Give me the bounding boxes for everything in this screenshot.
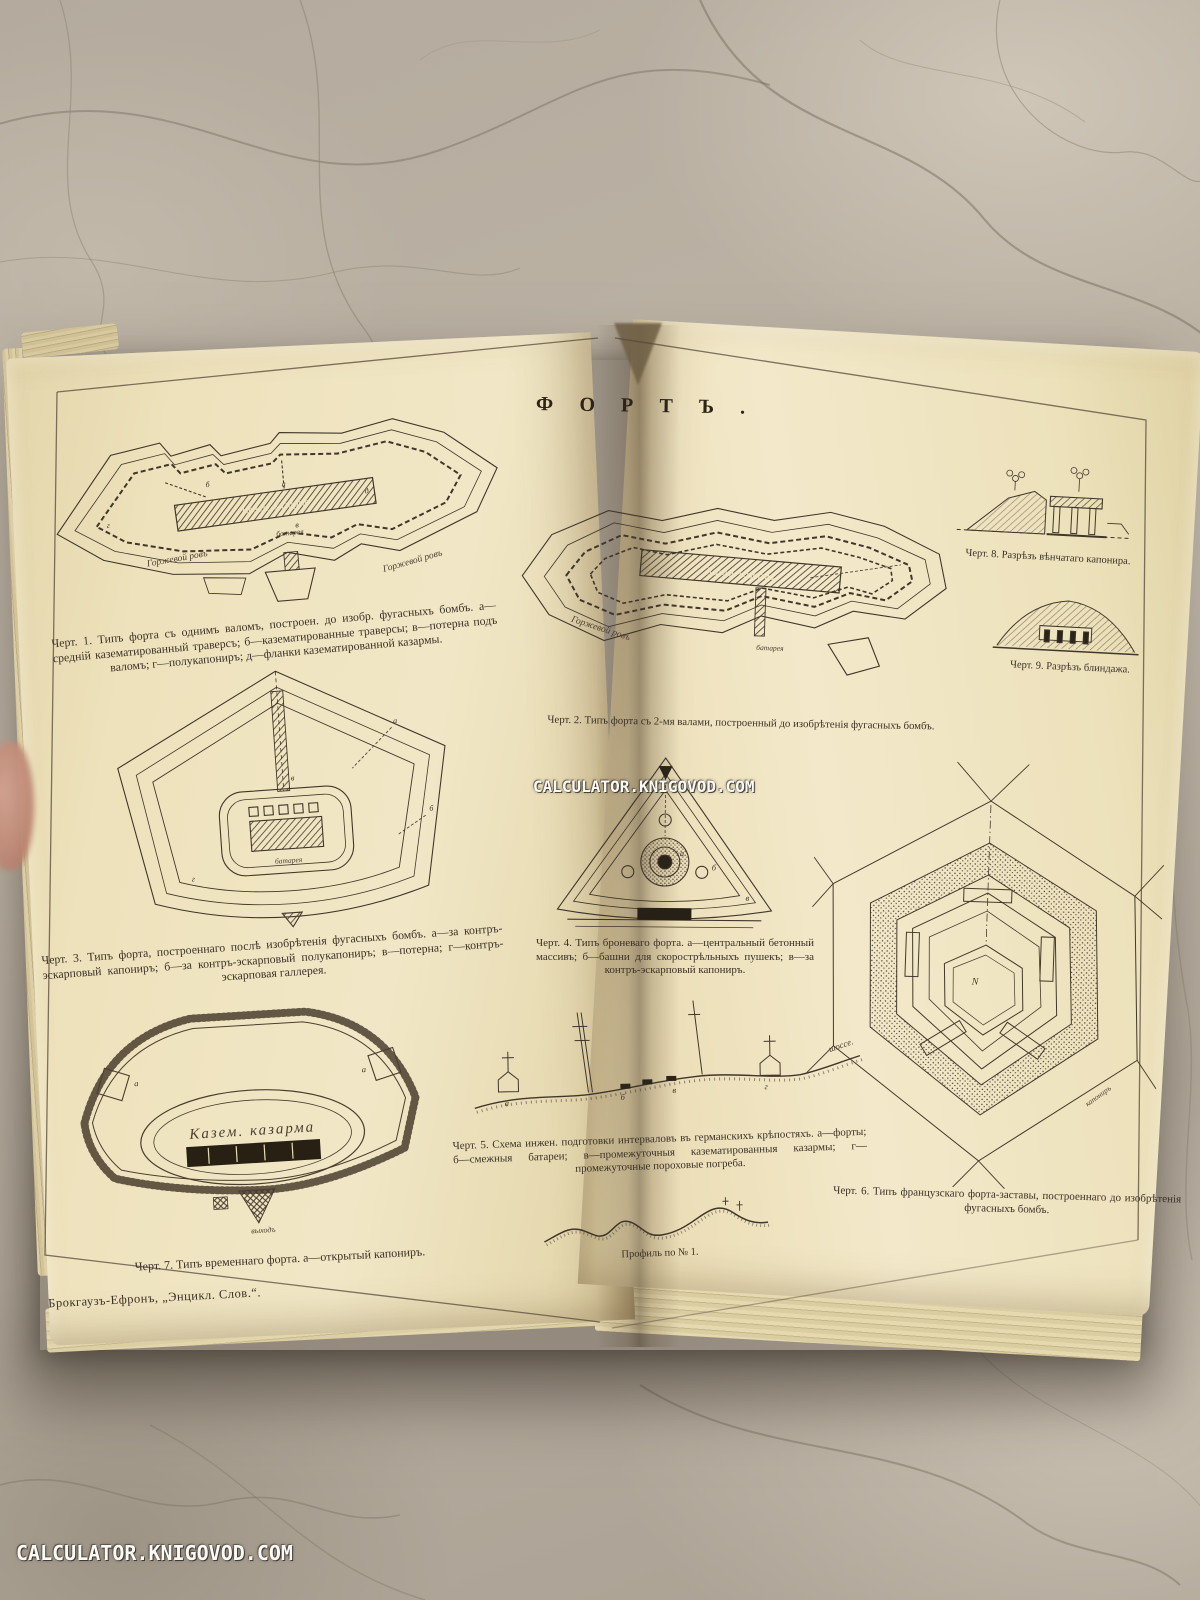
fig1-mark-a: а (281, 479, 286, 488)
fig5-mark-v: в (672, 1085, 676, 1095)
fig1-mark-b: б (205, 480, 211, 489)
figure-8-caponier-section (948, 455, 1143, 560)
fig4-mark-b: б (712, 862, 717, 872)
fig4-mark-v: в (745, 893, 749, 903)
figure-9-blindage-section (988, 583, 1147, 666)
fig6-caponier-label: капониръ (1083, 1083, 1112, 1108)
figure-4-caption: Черт. 4. Типъ броневаго форта. а—централ… (536, 937, 814, 978)
watermark-center: CALCULATOR.KNIGOVOD.COM (533, 777, 755, 796)
fig1-gorge-ditch-right-label: Горжевой ровъ (381, 547, 444, 575)
fig1-mark-v: в (295, 520, 300, 529)
plate-title: ФОРТЪ. (536, 393, 771, 420)
fig1-mark-d: д (364, 486, 369, 495)
fig5-mark-a: а (505, 1098, 509, 1108)
fig2-battery-label: батарея (756, 643, 784, 653)
fig7-casemate-block (186, 1139, 321, 1167)
fig7-barracks-label: Казем. казарма (188, 1119, 316, 1143)
profile-sketch (539, 1194, 775, 1252)
fig4-mark-a: а (680, 848, 684, 858)
fig4-gorge-block (637, 908, 691, 920)
fig1-mark-g: г (106, 521, 110, 530)
figure-6-french-fort-plan: N капониръ (803, 757, 1168, 1194)
fig6-north-label: N (971, 977, 980, 988)
figure-1-single-rampart-fort-plan: Горжевой ровъ Горжевой ровъ Казем. казар… (40, 383, 517, 637)
fig1-battery-label: батарея (276, 527, 305, 538)
fig5-mark-g: г (764, 1081, 768, 1091)
fig3-mark-a: а (393, 716, 398, 725)
fig7-mark-a-left: а (134, 1078, 139, 1088)
fig7-exit-label: выходъ (251, 1225, 276, 1235)
fig3-mark-g: г (191, 874, 195, 883)
fig7-mark-a-right: а (361, 1064, 366, 1074)
book-photo: ФОРТЪ. Горжевой ровъ (0, 0, 1200, 1600)
figure-7-temporary-fort-plan: Казем. казарма выходъ а а (49, 973, 459, 1247)
figure-2-double-rampart-fort-plan: Казем. казарма Горжевой ровъ батарея (506, 455, 959, 720)
open-book: ФОРТЪ. Горжевой ровъ (28, 325, 1163, 1355)
figure-3-counterscarp-fort-plan: батарея а б в г (89, 648, 479, 941)
fig3-mark-b: б (429, 804, 435, 813)
fig3-mark-v: в (291, 773, 296, 782)
fig5-mark-b: б (620, 1092, 625, 1102)
watermark-bottom-left: CALCULATOR.KNIGOVOD.COM (16, 1541, 293, 1565)
